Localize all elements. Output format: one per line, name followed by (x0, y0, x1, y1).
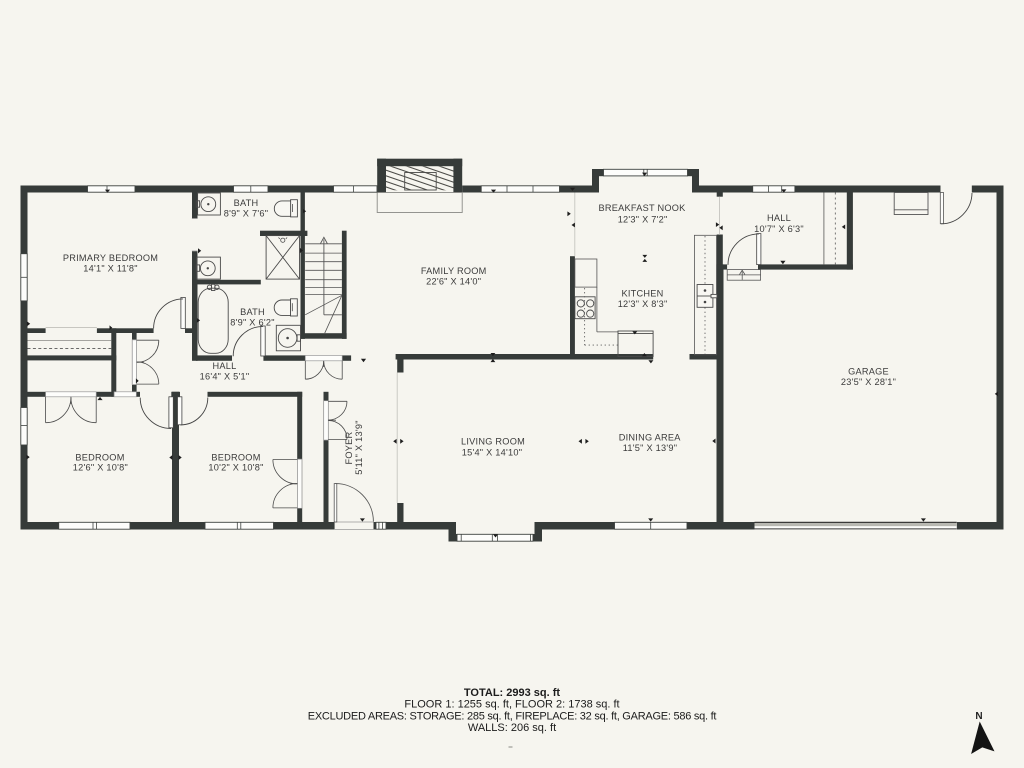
svg-text:FAMILY ROOM: FAMILY ROOM (421, 266, 487, 276)
svg-text:WALLS: 206 sq. ft: WALLS: 206 sq. ft (468, 722, 556, 734)
svg-text:BEDROOM: BEDROOM (75, 453, 124, 463)
svg-text:10'7" X 6'3": 10'7" X 6'3" (754, 224, 804, 234)
svg-text:12'3" X 8'3": 12'3" X 8'3" (618, 299, 668, 309)
svg-text:10'2" X 10'8": 10'2" X 10'8" (208, 463, 263, 473)
svg-text:23'5" X 28'1": 23'5" X 28'1" (841, 377, 896, 387)
svg-text:BATH: BATH (234, 198, 259, 208)
svg-text:BATH: BATH (240, 307, 265, 317)
svg-text:12'3" X 7'2": 12'3" X 7'2" (618, 214, 668, 224)
svg-text:N: N (975, 711, 982, 722)
svg-text:TOTAL: 2993 sq. ft: TOTAL: 2993 sq. ft (464, 687, 561, 699)
svg-text:PRIMARY BEDROOM: PRIMARY BEDROOM (63, 253, 158, 263)
svg-text:8'9" X 6'2": 8'9" X 6'2" (230, 317, 274, 327)
svg-text:KITCHEN: KITCHEN (621, 289, 663, 299)
svg-text:BREAKFAST NOOK: BREAKFAST NOOK (598, 203, 686, 213)
svg-text:HALL: HALL (767, 213, 791, 223)
svg-text:FOYER: FOYER (344, 431, 354, 464)
svg-text:FLOOR 1: 1255 sq. ft, FLOOR 2:: FLOOR 1: 1255 sq. ft, FLOOR 2: 1738 sq. … (404, 699, 619, 711)
svg-text:LIVING ROOM: LIVING ROOM (461, 437, 525, 447)
svg-text:14'1" X 11'8": 14'1" X 11'8" (83, 264, 138, 274)
svg-text:GARAGE: GARAGE (848, 367, 889, 377)
svg-text:DINING AREA: DINING AREA (619, 433, 682, 443)
svg-text:22'6" X 14'0": 22'6" X 14'0" (426, 276, 481, 286)
svg-text:5'11" X 13'9": 5'11" X 13'9" (354, 420, 364, 475)
svg-text:HALL: HALL (213, 361, 237, 371)
svg-text:BEDROOM: BEDROOM (211, 453, 260, 463)
svg-text:8'9" X 7'6": 8'9" X 7'6" (224, 209, 268, 219)
svg-text:12'6" X 10'8": 12'6" X 10'8" (73, 463, 128, 473)
svg-text:15'4" X 14'10": 15'4" X 14'10" (462, 448, 523, 458)
svg-text:11'5" X 13'9": 11'5" X 13'9" (623, 443, 678, 453)
svg-text:EXCLUDED AREAS: STORAGE: 285 s: EXCLUDED AREAS: STORAGE: 285 sq. ft, FIR… (308, 710, 717, 722)
svg-text:16'4" X 5'1": 16'4" X 5'1" (200, 372, 250, 382)
